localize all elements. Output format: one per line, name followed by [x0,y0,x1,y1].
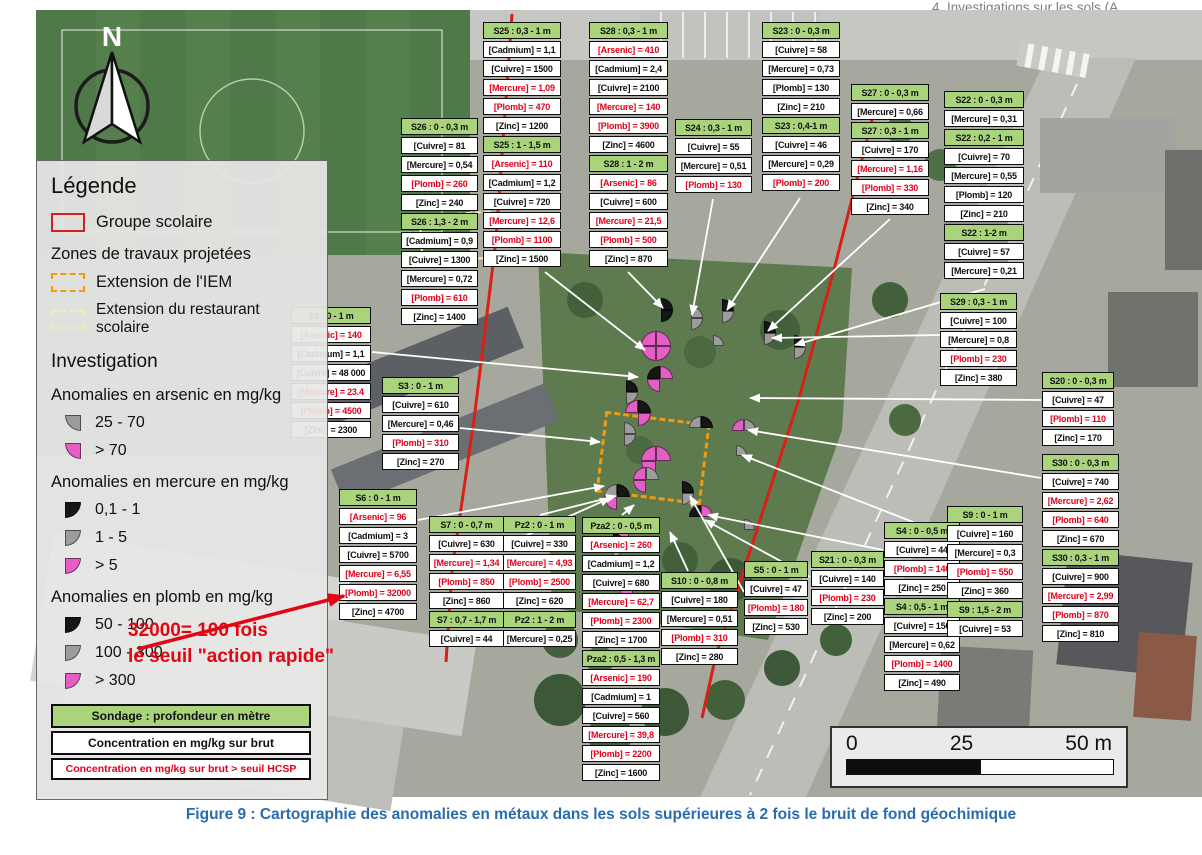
sounding-value-row: [Mercure] = 6,55 [339,565,417,582]
sounding-value-row: [Zinc] = 860 [429,592,504,609]
pie-quarter-wedge [764,321,776,333]
pie-quarter-wedge [604,497,617,510]
yellow-dashed-rect-icon [51,310,85,329]
pie-quarter-wedge [646,467,659,480]
pie-quarter-wedge [638,400,651,413]
sounding-depth-header: S28 : 1 - 2 m [589,155,668,172]
legend-investigation-title: Investigation [51,351,313,373]
sounding-depth-header: Pza2 : 0 - 0,5 m [582,517,660,534]
legend-item: 0,1 - 1 [65,501,313,519]
sounding-value-row: [Zinc] = 210 [762,98,840,115]
pie-quarter-wedge [722,299,734,311]
legend-section-plomb: Anomalies en plomb en mg/kg [51,588,313,607]
pie-quarter-wedge [713,335,724,346]
legend-item: > 70 [65,442,313,460]
sounding-box-S6: S6 : 0 - 1 m[Arsenic] = 96[Cadmium] = 3[… [339,489,417,622]
sounding-depth-header: S5 : 0 - 1 m [744,561,808,578]
sounding-depth-header: S26 : 0 - 0,3 m [401,118,478,135]
sounding-value-row: [Zinc] = 4600 [589,136,668,153]
sounding-value-row: [Cuivre] = 5700 [339,546,417,563]
sounding-value-row: [Arsenic] = 190 [582,669,660,686]
legend-item: 25 - 70 [65,414,313,432]
pie-wedge-icon [65,645,81,661]
pie-quarter-wedge [625,400,638,413]
pie-wedge-icon [65,617,81,633]
sounding-value-row: [Plomb] = 310 [661,629,738,646]
sounding-depth-header: S20 : 0 - 0,3 m [1042,372,1114,389]
legend-label: > 5 [95,557,118,575]
sounding-value-row: [Zinc] = 810 [1042,625,1119,642]
pie-quarter-wedge [633,467,646,480]
sounding-value-row: [Mercure] = 4,93 [503,554,576,571]
sounding-value-row: [Plomb] = 850 [429,573,504,590]
sounding-value-row: [Plomb] = 130 [762,79,840,96]
sounding-value-row: [Cuivre] = 740 [1042,473,1119,490]
sounding-value-row: [Arsenic] = 86 [589,174,668,191]
pie-quarter-wedge [624,434,636,446]
sounding-value-row: [Zinc] = 340 [851,198,929,215]
sounding-depth-header: S22 : 0,2 - 1 m [944,129,1024,146]
sounding-value-row: [Zinc] = 210 [944,205,1024,222]
sounding-value-row: [Plomb] = 180 [744,599,808,616]
sounding-value-row: [Mercure] = 1,34 [429,554,504,571]
scale-bar-segments [846,759,1114,775]
sounding-value-row: [Zinc] = 360 [947,582,1023,599]
sounding-box-S28: S28 : 0,3 - 1 m[Arsenic] = 410[Cadmium] … [589,22,668,269]
sounding-box-S27: S27 : 0 - 0,3 m[Mercure] = 0,66S27 : 0,3… [851,84,929,217]
pie-quarter-wedge [744,419,756,431]
sounding-depth-header: S10 : 0 - 0,8 m [661,572,738,589]
sounding-value-row: [Mercure] = 0,25 [503,630,576,647]
sample-pie-marker [752,321,776,345]
legend-label: Groupe scolaire [96,213,212,232]
sounding-value-row: [Zinc] = 1500 [483,250,561,267]
sounding-value-row: [Zinc] = 620 [503,592,576,609]
sounding-value-row: [Zinc] = 1600 [582,764,660,781]
sounding-value-row: [Cuivre] = 160 [947,525,1023,542]
pie-quarter-wedge [647,379,660,392]
sounding-value-row: [Zinc] = 1400 [401,308,478,325]
pie-wedge-icon [65,502,81,518]
sounding-value-row: [Zinc] = 170 [1042,429,1114,446]
sounding-value-row: [Cuivre] = 610 [382,396,459,413]
sounding-depth-header: S24 : 0,3 - 1 m [675,119,752,136]
sounding-box-S3: S3 : 0 - 1 m[Cuivre] = 610[Mercure] = 0,… [382,377,459,472]
sounding-value-row: [Mercure] = 39,8 [582,726,660,743]
scale-segment-white [980,760,1113,774]
sounding-value-row: [Cuivre] = 600 [589,193,668,210]
pie-quarter-wedge [624,422,636,434]
legend-label: > 70 [95,442,127,460]
sounding-value-row: [Zinc] = 240 [401,194,478,211]
annotation-line2: le seuil "action rapide" [128,644,334,670]
pie-quarter-wedge [617,484,630,497]
sounding-value-row: [Mercure] = 0,73 [762,60,840,77]
sounding-value-row: [Cuivre] = 53 [947,620,1023,637]
sounding-value-row: [Cuivre] = 140 [811,570,884,587]
sounding-value-row: [Mercure] = 0,31 [944,110,1024,127]
sounding-value-row: [Zinc] = 270 [382,453,459,470]
sounding-value-row: [Plomb] = 2500 [503,573,576,590]
pie-quarter-wedge [656,331,671,346]
legend-item-groupe-scolaire: Groupe scolaire [51,213,313,232]
legend-item: > 5 [65,557,313,575]
sounding-depth-header: S22 : 0 - 0,3 m [944,91,1024,108]
sample-pie-marker [689,416,713,440]
legend-key-table: Sondage : profondeur en mètre Concentrat… [51,704,311,783]
sounding-depth-header: S26 : 1,3 - 2 m [401,213,478,230]
sounding-value-row: [Zinc] = 530 [744,618,808,635]
key-row-sondage: Sondage : profondeur en mètre [51,704,311,728]
sounding-value-row: [Cuivre] = 1300 [401,251,478,268]
pie-quarter-wedge [633,480,646,493]
sounding-value-row: [Cuivre] = 47 [744,580,808,597]
sounding-value-row: [Mercure] = 0,3 [947,544,1023,561]
pie-quarter-wedge [641,331,656,346]
sample-pie-marker [710,299,734,323]
legend-zones-title: Zones de travaux projetées [51,245,313,264]
sounding-value-row: [Cuivre] = 57 [944,243,1024,260]
sounding-value-row: [Plomb] = 640 [1042,511,1119,528]
sounding-box-Pza2: Pza2 : 0 - 0,5 m[Arsenic] = 260[Cadmium]… [582,517,660,783]
sounding-value-row: [Zinc] = 4700 [339,603,417,620]
sounding-value-row: [Cadmium] = 3 [339,527,417,544]
pie-quarter-wedge [689,505,701,517]
sounding-value-row: [Arsenic] = 260 [582,536,660,553]
sounding-depth-header: S7 : 0 - 0,7 m [429,516,504,533]
sounding-value-row: [Plomb] = 130 [675,176,752,193]
legend-panel: Légende Groupe scolaire Zones de travaux… [36,160,328,800]
sounding-depth-header: S28 : 0,3 - 1 m [589,22,668,39]
sounding-box-S30: S30 : 0 - 0,3 m[Cuivre] = 740[Mercure] =… [1042,454,1119,644]
pie-quarter-wedge [691,318,703,330]
pie-quarter-wedge [744,519,755,530]
pie-quarter-wedge [689,416,701,428]
north-arrow: N [62,18,162,158]
sounding-value-row: [Plomb] = 32000 [339,584,417,601]
sounding-value-row: [Zinc] = 280 [661,648,738,665]
sounding-value-row: [Plomb] = 120 [944,186,1024,203]
pie-wedge-icon [65,415,81,431]
sample-pie-marker [604,484,630,510]
sounding-value-row: [Cuivre] = 47 [1042,391,1114,408]
pie-wedge-icon [65,443,81,459]
pie-wedge-icon [65,673,81,689]
pie-quarter-wedge [764,333,776,345]
scale-bar: 0 25 50 m [830,726,1128,788]
sounding-value-row: [Mercure] = 0,46 [382,415,459,432]
sounding-value-row: [Cuivre] = 58 [762,41,840,58]
sample-pie-marker [679,306,703,330]
sounding-value-row: [Mercure] = 12,6 [483,212,561,229]
key-row-concentration: Concentration en mg/kg sur brut [51,731,311,755]
pie-quarter-wedge [661,310,673,322]
sample-pie-marker [670,481,694,505]
orange-dashed-rect-icon [51,273,85,292]
sounding-value-row: [Cadmium] = 1,1 [483,41,561,58]
sounding-value-row: [Cadmium] = 0,9 [401,232,478,249]
sounding-value-row: [Mercure] = 0,54 [401,156,478,173]
sounding-value-row: [Mercure] = 0,51 [661,610,738,627]
pie-quarter-wedge [736,445,747,456]
pie-quarter-wedge [691,306,703,318]
sounding-value-row: [Plomb] = 110 [1042,410,1114,427]
sounding-depth-header: S25 : 1 - 1,5 m [483,136,561,153]
sounding-depth-header: S9 : 0 - 1 m [947,506,1023,523]
sounding-value-row: [Zinc] = 1200 [483,117,561,134]
legend-label: 1 - 5 [95,529,127,547]
sounding-value-row: [Cuivre] = 70 [944,148,1024,165]
sample-pie-marker [702,335,724,357]
sounding-value-row: [Cuivre] = 180 [661,591,738,608]
sounding-value-row: [Mercure] = 0,55 [944,167,1024,184]
sounding-box-S24: S24 : 0,3 - 1 m[Cuivre] = 55[Mercure] = … [675,119,752,195]
sounding-box-S22: S22 : 0 - 0,3 m[Mercure] = 0,31S22 : 0,2… [944,91,1024,281]
pie-quarter-wedge [660,366,673,379]
pie-quarter-wedge [732,419,744,431]
pie-quarter-wedge [701,505,713,517]
sounding-value-row: [Cuivre] = 46 [762,136,840,153]
sounding-value-row: [Plomb] = 550 [947,563,1023,580]
sounding-value-row: [Mercure] = 0,29 [762,155,840,172]
pie-wedge-icon [65,558,81,574]
figure-page: 4. Investigations sur les sols (A [0,0,1202,855]
sounding-box-S26: S26 : 0 - 0,3 m[Cuivre] = 81[Mercure] = … [401,118,478,327]
sounding-depth-header: Pz2 : 1 - 2 m [503,611,576,628]
pie-quarter-wedge [794,335,806,347]
legend-label: 25 - 70 [95,414,145,432]
sample-pie-marker [732,419,756,443]
sounding-value-row: [Cadmium] = 1 [582,688,660,705]
sounding-value-row: [Arsenic] = 410 [589,41,668,58]
sample-pie-marker [641,331,671,361]
sounding-value-row: [Mercure] = 1,16 [851,160,929,177]
sounding-depth-header: S9 : 1,5 - 2 m [947,601,1023,618]
sounding-value-row: [Cadmium] = 1,2 [483,174,561,191]
annotation-line1: 32000= 100 fois [128,618,334,644]
sounding-value-row: [Cuivre] = 720 [483,193,561,210]
sounding-value-row: [Plomb] = 610 [401,289,478,306]
legend-label: 0,1 - 1 [95,501,140,519]
pie-quarter-wedge [722,311,734,323]
sounding-value-row: [Cuivre] = 1500 [483,60,561,77]
legend-item: > 300 [65,672,313,690]
sounding-value-row: [Plomb] = 310 [382,434,459,451]
legend-section-arsenic: Anomalies en arsenic en mg/kg [51,386,313,405]
sample-pie-marker [782,335,806,359]
pie-quarter-wedge [641,346,656,361]
sounding-value-row: [Mercure] = 0,66 [851,103,929,120]
sounding-depth-header: S30 : 0 - 0,3 m [1042,454,1119,471]
sounding-value-row: [Cuivre] = 680 [582,574,660,591]
sounding-depth-header: S3 : 0 - 1 m [382,377,459,394]
sounding-depth-header: S29 : 0,3 - 1 m [940,293,1017,310]
figure-caption: Figure 9 : Cartographie des anomalies en… [0,806,1202,824]
pie-quarter-wedge [701,416,713,428]
sample-pie-marker [649,298,673,322]
sounding-value-row: [Plomb] = 870 [1042,606,1119,623]
pie-quarter-wedge [682,481,694,493]
legend-label: Extension de l'IEM [96,273,232,292]
sounding-value-row: [Zinc] = 200 [811,608,884,625]
sounding-value-row: [Cadmium] = 1,2 [582,555,660,572]
sounding-value-row: [Arsenic] = 110 [483,155,561,172]
sounding-value-row: [Mercure] = 0,8 [940,331,1017,348]
sounding-value-row: [Mercure] = 0,72 [401,270,478,287]
sounding-value-row: [Zinc] = 490 [884,674,960,691]
sounding-value-row: [Cuivre] = 630 [429,535,504,552]
sounding-box-S23: S23 : 0 - 0,3 m[Cuivre] = 58[Mercure] = … [762,22,840,193]
sounding-value-row: [Cuivre] = 330 [503,535,576,552]
pie-quarter-wedge [682,493,694,505]
sounding-value-row: [Zinc] = 870 [589,250,668,267]
legend-section-mercure: Anomalies en mercure en mg/kg [51,473,313,492]
red-rectangle-icon [51,213,85,232]
sounding-box-S9: S9 : 0 - 1 m[Cuivre] = 160[Mercure] = 0,… [947,506,1023,639]
sounding-value-row: [Mercure] = 2,99 [1042,587,1119,604]
pie-quarter-wedge [794,347,806,359]
sounding-value-row: [Cuivre] = 44 [429,630,504,647]
sounding-value-row: [Plomb] = 230 [811,589,884,606]
annotation-text: 32000= 100 fois le seuil "action rapide" [128,618,334,670]
sample-pie-marker [633,467,659,493]
sounding-box-S7: S7 : 0 - 0,7 m[Cuivre] = 630[Mercure] = … [429,516,504,649]
sounding-value-row: [Plomb] = 500 [589,231,668,248]
sounding-value-row: [Cadmium] = 2,4 [589,60,668,77]
scale-tick-50: 50 m [1065,732,1112,756]
legend-item-extension-restaurant: Extension du restaurant scolaire [51,301,313,337]
sounding-value-row: [Plomb] = 1400 [884,655,960,672]
sounding-depth-header: S7 : 0,7 - 1,7 m [429,611,504,628]
sounding-depth-header: S25 : 0,3 - 1 m [483,22,561,39]
sounding-value-row: [Mercure] = 2,62 [1042,492,1119,509]
pie-wedge-icon [65,530,81,546]
scale-tick-0: 0 [846,732,858,756]
sounding-box-S21: S21 : 0 - 0,3 m[Cuivre] = 140[Plomb] = 2… [811,551,884,627]
pie-quarter-wedge [656,446,671,461]
sounding-value-row: [Zinc] = 380 [940,369,1017,386]
sounding-value-row: [Cuivre] = 81 [401,137,478,154]
sounding-value-row: [Mercure] = 0,21 [944,262,1024,279]
sounding-value-row: [Plomb] = 330 [851,179,929,196]
scale-bar-labels: 0 25 50 m [846,732,1112,756]
legend-label: Extension du restaurant scolaire [96,301,313,337]
north-label: N [102,21,122,52]
sounding-value-row: [Arsenic] = 96 [339,508,417,525]
sounding-box-S5: S5 : 0 - 1 m[Cuivre] = 47[Plomb] = 180[Z… [744,561,808,637]
sounding-value-row: [Plomb] = 260 [401,175,478,192]
pie-quarter-wedge [661,298,673,310]
sounding-value-row: [Cuivre] = 170 [851,141,929,158]
sample-pie-marker [647,366,673,392]
sounding-value-row: [Cuivre] = 560 [582,707,660,724]
sounding-value-row: [Cuivre] = 100 [940,312,1017,329]
sounding-value-row: [Plomb] = 470 [483,98,561,115]
sounding-depth-header: Pz2 : 0 - 1 m [503,516,576,533]
pie-quarter-wedge [604,484,617,497]
sounding-value-row: [Plomb] = 230 [940,350,1017,367]
sounding-value-row: [Plomb] = 2300 [582,612,660,629]
sounding-box-S29: S29 : 0,3 - 1 m[Cuivre] = 100[Mercure] =… [940,293,1017,388]
sounding-value-row: [Cuivre] = 55 [675,138,752,155]
sounding-value-row: [Mercure] = 62,7 [582,593,660,610]
sounding-depth-header: S23 : 0 - 0,3 m [762,22,840,39]
sample-pie-marker [733,519,755,541]
sample-pie-marker [612,422,636,446]
sounding-value-row: [Zinc] = 670 [1042,530,1119,547]
scale-segment-black [847,760,980,774]
sounding-box-S25: S25 : 0,3 - 1 m[Cadmium] = 1,1[Cuivre] =… [483,22,561,269]
legend-item: 1 - 5 [65,529,313,547]
sounding-depth-header: S27 : 0,3 - 1 m [851,122,929,139]
sounding-depth-header: S6 : 0 - 1 m [339,489,417,506]
sounding-value-row: [Mercure] = 140 [589,98,668,115]
sounding-value-row: [Plomb] = 200 [762,174,840,191]
sounding-depth-header: S27 : 0 - 0,3 m [851,84,929,101]
sample-pie-marker [725,445,747,467]
pie-quarter-wedge [626,380,638,392]
pie-quarter-wedge [641,446,656,461]
sounding-value-row: [Plomb] = 3900 [589,117,668,134]
sounding-value-row: [Plomb] = 1100 [483,231,561,248]
sounding-value-row: [Zinc] = 1700 [582,631,660,648]
pie-quarter-wedge [656,346,671,361]
sounding-depth-header: S30 : 0,3 - 1 m [1042,549,1119,566]
key-row-concentration-hcsp: Concentration en mg/kg sur brut > seuil … [51,758,311,780]
legend-item-extension-iem: Extension de l'IEM [51,273,313,292]
scale-tick-25: 25 [950,732,973,756]
legend-title: Légende [51,173,313,199]
sounding-box-S20: S20 : 0 - 0,3 m[Cuivre] = 47[Plomb] = 11… [1042,372,1114,448]
sounding-value-row: [Plomb] = 2200 [582,745,660,762]
sounding-value-row: [Mercure] = 0,51 [675,157,752,174]
sounding-box-S10: S10 : 0 - 0,8 m[Cuivre] = 180[Mercure] =… [661,572,738,667]
sounding-depth-header: S22 : 1-2 m [944,224,1024,241]
sounding-value-row: [Cuivre] = 2100 [589,79,668,96]
sounding-value-row: [Cuivre] = 900 [1042,568,1119,585]
sample-pie-marker [689,505,713,529]
legend-label: > 300 [95,672,135,690]
sounding-value-row: [Mercure] = 21,5 [589,212,668,229]
pie-quarter-wedge [638,413,651,426]
sounding-value-row: [Mercure] = 1,09 [483,79,561,96]
pie-quarter-wedge [647,366,660,379]
sounding-depth-header: Pza2 : 0,5 - 1,3 m [582,650,660,667]
sounding-box-Pz2: Pz2 : 0 - 1 m[Cuivre] = 330[Mercure] = 4… [503,516,576,649]
sounding-depth-header: S23 : 0,4-1 m [762,117,840,134]
sounding-depth-header: S21 : 0 - 0,3 m [811,551,884,568]
